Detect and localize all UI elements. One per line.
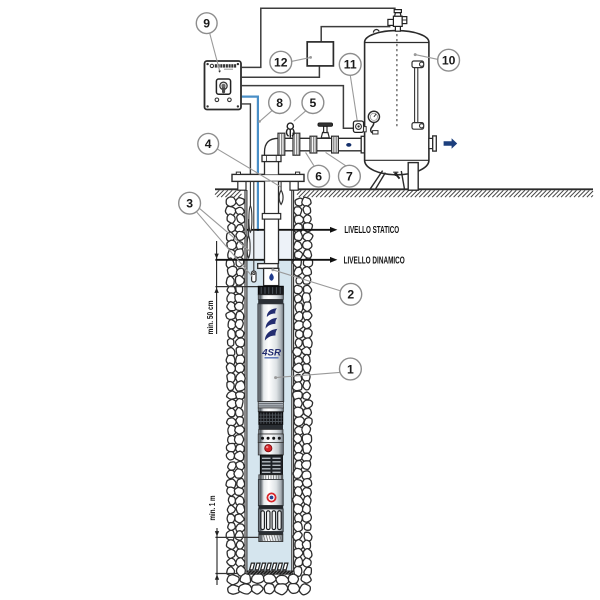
svg-text:4: 4 xyxy=(205,137,212,151)
svg-text:12: 12 xyxy=(274,56,288,70)
svg-text:7: 7 xyxy=(346,170,353,184)
svg-text:6: 6 xyxy=(315,170,322,184)
svg-text:2: 2 xyxy=(347,288,354,302)
svg-text:min. 50 cm: min. 50 cm xyxy=(205,300,215,334)
svg-text:8: 8 xyxy=(276,96,283,110)
svg-text:9: 9 xyxy=(203,17,210,31)
svg-text:10: 10 xyxy=(442,54,456,68)
svg-text:5: 5 xyxy=(310,96,317,110)
svg-text:4SR: 4SR xyxy=(261,348,281,359)
svg-text:LIVELLO DINAMICO: LIVELLO DINAMICO xyxy=(344,255,405,266)
svg-text:11: 11 xyxy=(344,58,357,72)
svg-text:min. 1 m: min. 1 m xyxy=(207,495,217,520)
svg-text:LIVELLO STATICO: LIVELLO STATICO xyxy=(344,225,399,236)
svg-text:3: 3 xyxy=(186,197,193,211)
svg-text:1: 1 xyxy=(347,362,354,376)
